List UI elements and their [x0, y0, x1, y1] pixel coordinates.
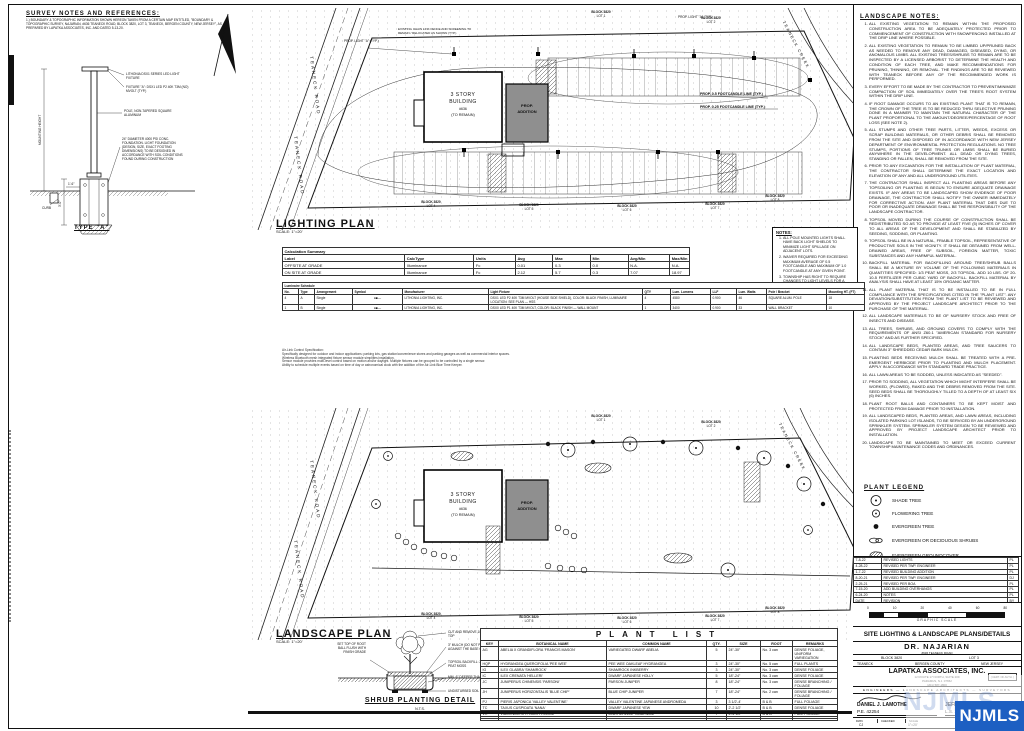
building-label-2: BUILDING [429, 99, 497, 105]
lot-label: BLOCK 3820LOT 8 [752, 606, 798, 614]
building-label-3: #636 [429, 507, 497, 511]
mounting-height-dim: MOUNTING HEIGHT [38, 115, 42, 145]
scale-tick: 40 [948, 606, 952, 610]
lighting-plan-scale: SCALE: 1"=20' [276, 230, 375, 235]
landscape-notes-list: ALL EXISTING VEGETATION TO REMAIN WITHIN… [860, 22, 1016, 450]
calc-summary-row: ON SITE AT GRADE Illuminance Fc 2.12 5.7… [283, 269, 690, 276]
lot-label: BLOCK 3820LOT 7 [692, 614, 738, 622]
landscape-note-item: TOPSOIL SHALL BE IN A NATURAL, FRIABLE T… [869, 239, 1016, 258]
project-band: DR. NAJARIAN #636 TEANECK ROAD [853, 641, 1021, 654]
plant-list-row [481, 719, 838, 721]
footcandle-05-label: PROP. 0.5 FOOTCANDLE LINE (TYP.) [700, 92, 796, 96]
prop-addition-label-2: ADDITION [507, 506, 547, 511]
building-label-4: (TO REMAIN) [429, 513, 497, 517]
pole-foundation-callout: 24" DIAMETER 4000 PSI CONC. FOUNDATION. … [122, 137, 190, 161]
control-spec-line: Ability to schedule multiple events base… [282, 364, 682, 368]
calc-summary-row: OFFSITE AT GRADE Illuminance Fc 0.01 0.3… [283, 262, 690, 269]
scale-tick: 0 [867, 606, 869, 610]
fence-note: EXISTING CHAIN LINK FENCE AND SCREENING … [398, 28, 478, 35]
landscape-note-item: ALL EXISTING VEGETATION TO REMAIN TO BE … [869, 44, 1016, 82]
luminaire-symbol-icon: ●■— [353, 295, 403, 305]
landscape-note-item: ALL STUMPS AND OTHER TREE PARTS, LITTER,… [869, 128, 1016, 162]
lot-label: BLOCK 3820LOT 1 [578, 10, 624, 18]
lot-label: BLOCK 3820LOT 7 [692, 202, 738, 210]
calc-summary-header: Label [283, 255, 405, 262]
scale-tick: 10 [893, 606, 897, 610]
landscape-notes-title: LANDSCAPE NOTES: [860, 13, 1016, 20]
control-spec: Air-Link Control Specification:Specifica… [282, 349, 682, 368]
prop-addition-label-2: ADDITION [507, 109, 547, 114]
calc-summary-header: Max [553, 255, 591, 262]
plant-legend-title: PLANT LEGEND [864, 484, 1016, 491]
evergreen-tree-symbols [546, 440, 825, 506]
lot-label: BLOCK 3820LOT 6 [604, 204, 650, 212]
north-arrow-icon [196, 12, 240, 78]
building-label-4: (TO REMAIN) [429, 113, 497, 117]
notes-box-item: ALL POLE MOUNTED LIGHTS SHALL HAVE BACK … [783, 236, 854, 254]
legend-item-evergreen-tree: EVERGREEN TREE [864, 520, 1016, 533]
landscape-note-item: ALL LANDSCAPE MATERIALS TO BE OF NURSERY… [869, 314, 1016, 324]
landscape-note-item: PRIOR TO SODDING, ALL VEGETATION WHICH M… [869, 380, 1016, 399]
plant-list: PLANT LIST KEYBOTANICAL NAMECOMMON NAMEQ… [480, 628, 838, 721]
luminaire-schedule-table: Luminaire Schedule No.TypeArrangementSym… [282, 282, 865, 311]
footcandle-025-label: PROP. 0.25 FOOTCANDLE LINE (TYP.) [700, 105, 796, 109]
plant-list-row: JH JUNIPERUS HORIZONTALIS 'BLUE CHIP' BL… [481, 689, 838, 699]
landscape-note-item: THE CONTRACTOR SHALL INSPECT ALL PLANTIN… [869, 181, 1016, 215]
revision-table: 7-8-22 REVISED LIGHTS PL 4-28-22 REVISED… [853, 557, 1019, 604]
sheet-title: SITE LIGHTING & LANDSCAPE PLANS/DETAILS [864, 631, 1011, 638]
notes-box-title: NOTES: [776, 230, 854, 235]
landscape-note-item: ALL LAWN AREAS TO BE SODDED, UNLESS INDI… [869, 373, 1016, 378]
notes-box-item: WAIVER REQUIRED FOR EXCEEDING MAXIMUM AV… [783, 255, 854, 273]
light-pole-detail: LITHONIA DSX1 SERIES LED LIGHT FIXTURE F… [30, 55, 195, 235]
landscape-note-item: ALL LANDSCAPE BEDS, PLANTED AREAS, AND T… [869, 344, 1016, 354]
building-label-1: 3 STORY [429, 92, 497, 98]
building-label-2: BUILDING [429, 499, 497, 505]
revision-block: 7-8-22 REVISED LIGHTS PL 4-28-22 REVISED… [853, 556, 1021, 602]
landscape-note-item: PLANT ROOT BALLS AND CONTAINERS TO BE KE… [869, 402, 1016, 412]
landscape-note-item: IF ROOT DAMAGE OCCURS TO AN EXISTING PLA… [869, 102, 1016, 126]
shrub-icon [864, 533, 888, 548]
lot-label: BLOCK 3820LOT 1 [578, 414, 624, 422]
scale-tick: 60 [976, 606, 980, 610]
landscape-notes: LANDSCAPE NOTES: ALL EXISTING VEGETATION… [860, 13, 1016, 453]
landscape-note-item: ALL PLANT MATERIAL THAT IS TO BE INSTALL… [869, 288, 1016, 312]
plant-list-row: AG ABELIA X GRANDIFLORA 'FRANCIS MASON' … [481, 647, 838, 661]
landscape-note-item: BACKFILL MATERIAL FOR BACKFILLING AROUND… [869, 261, 1016, 285]
lot-label: BLOCK 3820LOT 5 [506, 615, 552, 623]
landscape-note-item: PLANTING BEDS RECEIVING MULCH SHALL BE T… [869, 356, 1016, 370]
scan-artifact-bar [8, 55, 14, 105]
njmls-watermark: NJMLS [955, 701, 1024, 731]
prop-addition-label-1: PROP. [507, 500, 547, 505]
calc-summary-body: OFFSITE AT GRADE Illuminance Fc 0.01 0.3… [283, 262, 690, 276]
calculation-summary-table: Calculation Summary LabelCalcTypeUnitsAv… [282, 247, 690, 276]
graphic-scale-label: GRAPHIC SCALE [853, 618, 1021, 622]
plant-list-row: JC JUNIPERUS CHINENSIS 'PARSONI' PARSON … [481, 679, 838, 689]
scale-ticks: 01020406080 [867, 606, 1007, 610]
graphic-scale-bar [869, 612, 1005, 618]
lighting-plan: TEANECK ROAD TEANECK ROAD TEANECK CREEK … [248, 8, 854, 230]
pole-detail-title: TYPE "A" [74, 225, 109, 231]
shrub-callout-rootball: SET TOP OF ROOT BALL FLUSH WITH FINISH G… [332, 642, 366, 654]
pole-callout: POLE, NON-TAPERED SQUARE ALUMINUM [124, 109, 180, 117]
luminaire-body: 4 A Single ●■— LITHONIA LIGHTING, INC. D… [283, 295, 865, 311]
lighting-plan-title-block: LIGHTING PLAN SCALE: 1"=20' [276, 218, 375, 235]
calc-summary-header: Avg/Min [628, 255, 670, 262]
lot-label: BLOCK 3820LOT 2 [688, 16, 734, 24]
left-margin-strip [9, 430, 15, 622]
plant-legend: PLANT LEGEND SHADE TREE FLOWERING TREE E… [864, 484, 1016, 563]
lot-label: BLOCK 3820LOT 8 [752, 194, 798, 202]
landscape-note-item: EVERY EFFORT TO BE MADE BY THE CONTRACTO… [869, 85, 1016, 99]
legend-item-flowering-tree: FLOWERING TREE [864, 507, 1016, 520]
calc-summary-header: Max/Min [670, 255, 690, 262]
lot-label: BLOCK 3820LOT 4 [408, 200, 454, 208]
dwn-value: CJ [859, 723, 863, 727]
calc-summary-header: Units [474, 255, 516, 262]
scale-tick: 20 [921, 606, 925, 610]
building-label-1: 3 STORY [429, 492, 497, 498]
legend-item-shrubs: EVERGREEN OR DECIDUOUS SHRUBS [864, 533, 1016, 548]
calc-summary-header-row: LabelCalcTypeUnitsAvgMaxMinAvg/MinMax/Mi… [283, 255, 690, 262]
shade-tree-icon [864, 494, 888, 507]
plant-list-table: KEYBOTANICAL NAMECOMMON NAMEQTY.SIZEROOT… [480, 640, 838, 721]
lot-label: BLOCK 3820LOT 4 [408, 612, 454, 620]
graphic-scale-block: 01020406080 GRAPHIC SCALE [853, 602, 1021, 626]
drawing-sheet: SURVEY NOTES AND REFERENCES: 1.) BOUNDAR… [0, 0, 1024, 731]
plant-list-title: PLANT LIST [480, 628, 838, 640]
luminaire-row: 4 A Single ●■— LITHONIA LIGHTING, INC. D… [283, 295, 865, 305]
pole-fixture-callout: LITHONIA DSX1 SERIES LED LIGHT FIXTURE [126, 72, 190, 80]
pole-fixture2-callout: FIXTURE "A": DSX1 LED P2 40K T3M (NO) MV… [126, 85, 192, 93]
prop-light-label-1: PROP. LIGHT "A" (TYP.) [344, 40, 386, 44]
checked-label: CHECKED [877, 719, 895, 723]
calc-summary-header: CalcType [405, 255, 474, 262]
landscape-note-item: ALL LANDSCAPED BEDS, PLANTED AREAS, AND … [869, 414, 1016, 438]
landscape-note-item: ALL TREES, SHRUBS, AND GROUND COVERS TO … [869, 327, 1016, 341]
lot-label: BLOCK 3820LOT 6 [604, 616, 650, 624]
building-label-3: #636 [429, 107, 497, 111]
landscape-note-item: PRIOR TO ANY EXCAVATION FOR THE INSTALLA… [869, 164, 1016, 178]
lot-label: BLOCK 3820LOT 2 [688, 420, 734, 428]
scale-tick: 80 [1003, 606, 1007, 610]
flowering-tree-icon [864, 507, 888, 520]
luminaire-row: 1 B Single ●■— LITHONIA LIGHTING, INC. D… [283, 305, 865, 311]
luminaire-symbol-icon: ●■— [353, 305, 403, 311]
landscape-note-item: LANDSCAPE TO BE MAINTAINED TO MEET OR EX… [869, 441, 1016, 451]
project-name: DR. NAJARIAN [853, 642, 1021, 651]
landscape-plan: TEANECK ROAD TEANECK ROAD TEANECK CREEK … [248, 408, 854, 640]
calc-summary-title: Calculation Summary [283, 248, 690, 255]
sheet-title-band: SITE LIGHTING & LANDSCAPE PLANS/DETAILS [853, 626, 1021, 641]
plant-list-body: AG ABELIA X GRANDIFLORA 'FRANCIS MASON' … [481, 647, 838, 721]
legend-item-shade-tree: SHADE TREE [864, 494, 1016, 507]
calc-summary-header: Min [591, 255, 629, 262]
landscape-note-item: TOPSOIL MOVED DURING THE COURSE OF CONST… [869, 218, 1016, 237]
bottom-heavy-rule [248, 711, 852, 714]
calc-summary-header: Avg [515, 255, 553, 262]
foundation-depth-dim: 3'-0" [58, 201, 62, 207]
shrub-detail-title: SHRUB PLANTING DETAIL [340, 697, 500, 704]
foundation-width-dim: 1'-6" [68, 182, 74, 186]
prop-addition-label-1: PROP. [507, 103, 547, 108]
revision-body: 7-8-22 REVISED LIGHTS PL 4-28-22 REVISED… [854, 558, 1019, 604]
evergreen-tree-icon [864, 520, 888, 533]
landscape-note-item: ALL EXISTING VEGETATION TO REMAIN WITHIN… [869, 22, 1016, 41]
lot-label: BLOCK 3820LOT 5 [506, 203, 552, 211]
